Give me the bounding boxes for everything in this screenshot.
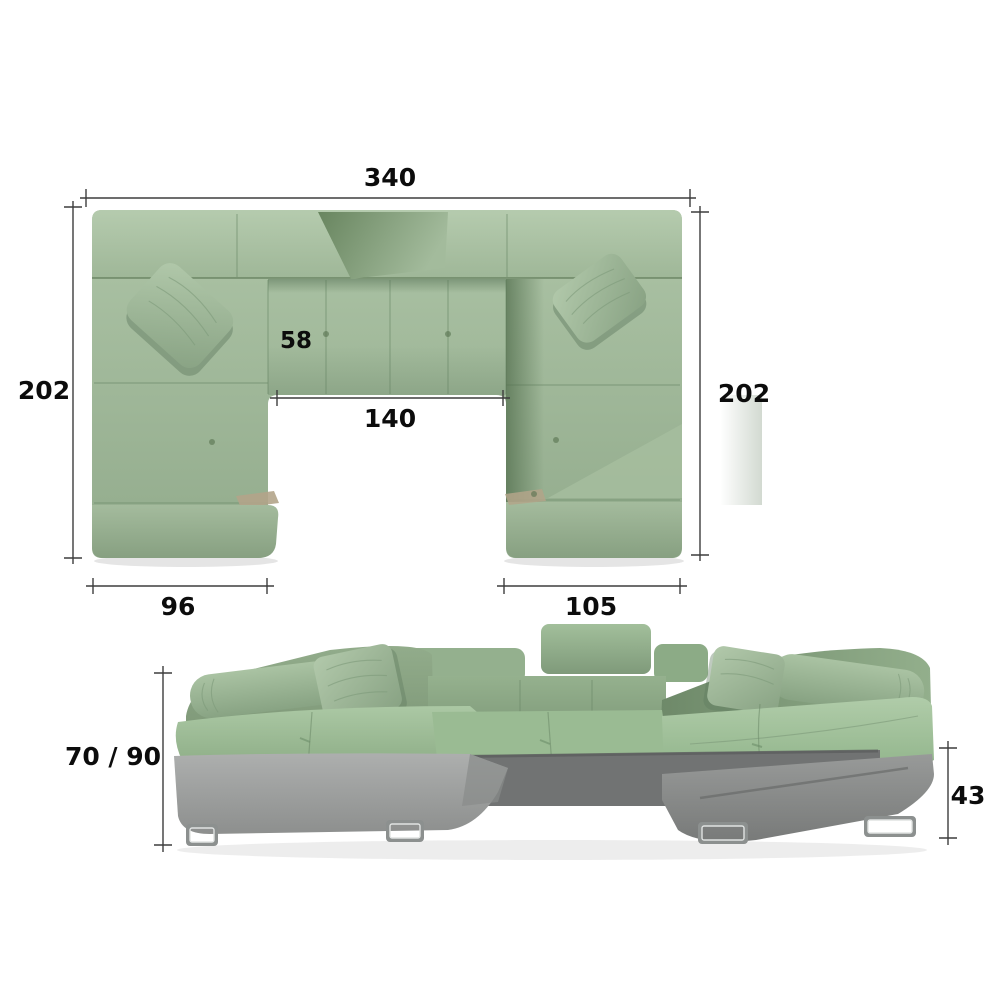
dim-label-seat-height: 43 [951,781,986,810]
front-ground-shadow [177,840,927,860]
front-leg-1 [188,826,216,844]
dim-label-left-depth: 202 [18,376,70,405]
dim-right-depth: 202 [691,206,770,561]
dim-label-right-section: 105 [565,592,617,621]
dim-label-back-height: 70 / 90 [65,742,161,771]
dim-inner-opening-width: 140 [270,390,510,433]
front-view: 70 / 90 43 [65,624,985,860]
dim-label-right-depth: 202 [718,379,770,408]
top-right-inner-shadow [506,279,544,503]
dim-label-total-width: 340 [364,163,416,192]
top-center-back-shadow [268,279,506,293]
dim-total-width: 340 [80,163,696,207]
top-right-base [506,502,682,558]
dim-back-height: 70 / 90 [65,666,172,852]
front-raised-headrest [541,624,651,674]
front-left-base [174,753,508,834]
dim-seat-height: 43 [939,741,985,845]
dim-label-seat-module: 58 [280,328,312,354]
front-leg-2 [388,822,422,840]
front-leg-4 [866,818,914,835]
sofa-diagram-svg: 340 202 202 140 [0,0,1000,1000]
dim-left-section-width: 96 [86,578,274,621]
top-view: 340 202 202 140 [18,163,770,621]
dim-label-inner-opening: 140 [364,404,416,433]
dim-label-left-section: 96 [161,592,196,621]
top-left-base [92,505,278,558]
sofa-dimensions-figure: 340 202 202 140 [0,0,1000,1000]
top-left-inner-shade [720,395,762,505]
dim-right-section-width: 105 [497,578,687,621]
dim-left-depth: 202 [18,201,82,564]
